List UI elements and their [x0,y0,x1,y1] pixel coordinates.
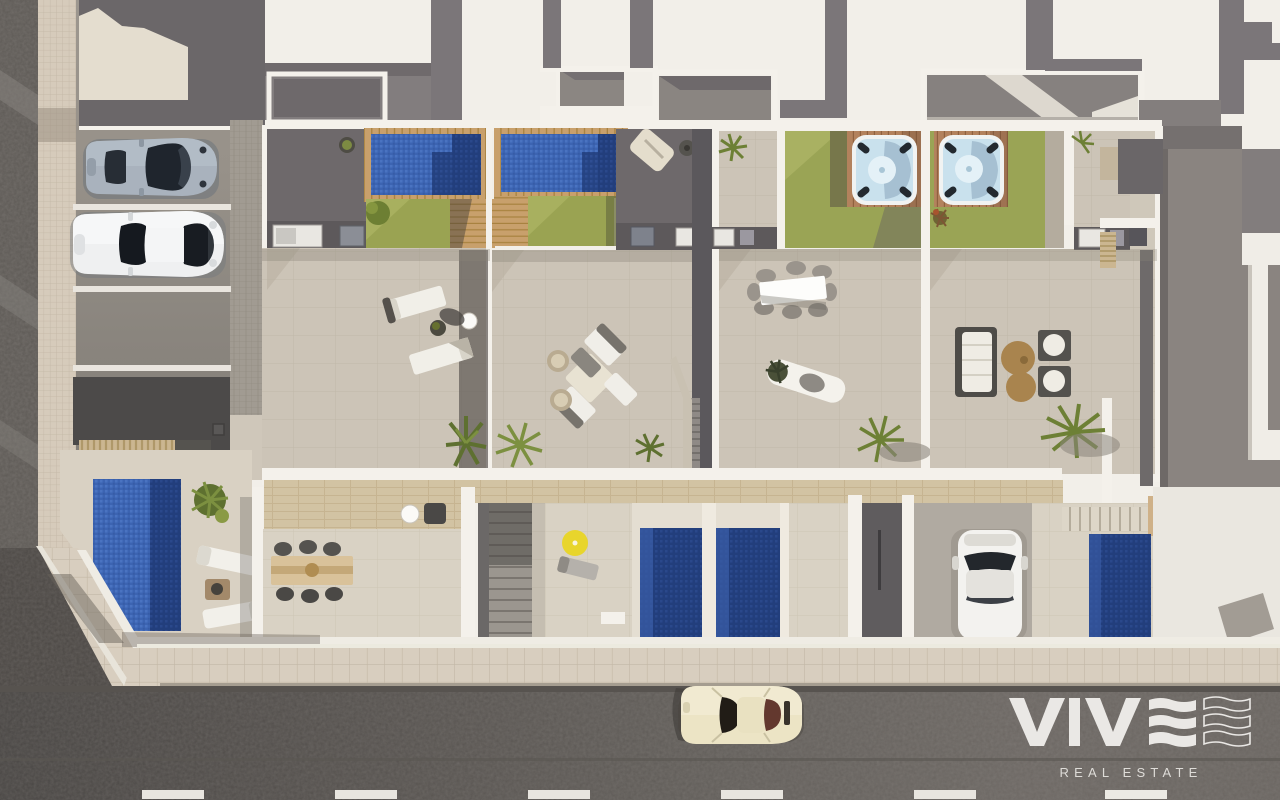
svg-text:REAL ESTATE: REAL ESTATE [1060,765,1203,780]
